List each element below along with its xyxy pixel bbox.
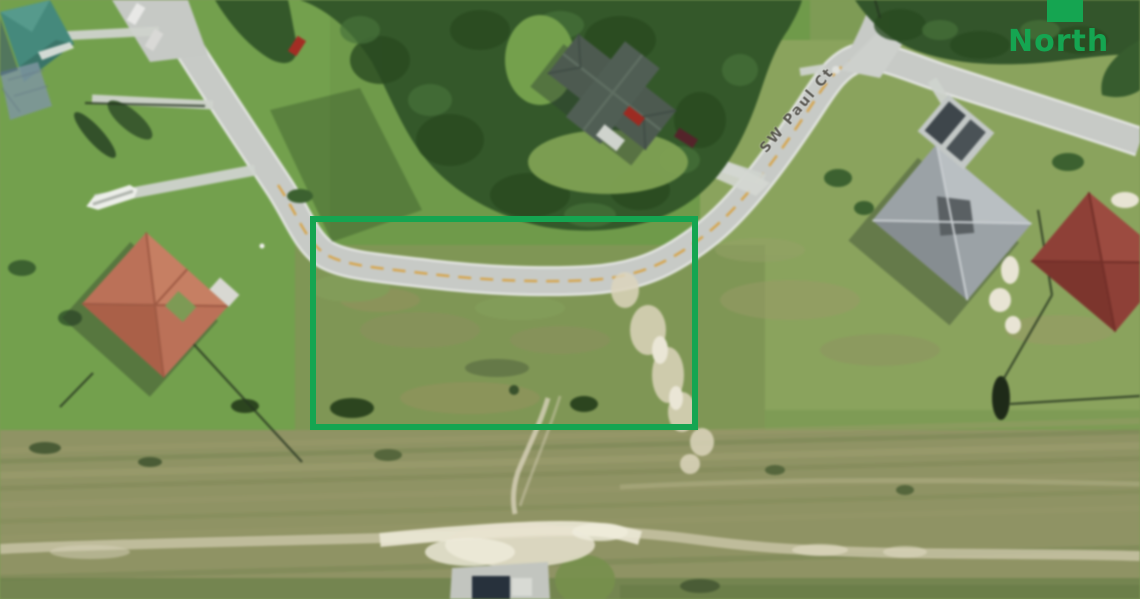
north-label: North xyxy=(1008,24,1109,59)
aerial-map-view: SW Paul Ct North xyxy=(0,0,1140,599)
annotation-layer xyxy=(0,0,1140,599)
lot-outline-annotation xyxy=(313,219,695,427)
north-arrow-icon xyxy=(1047,0,1083,22)
north-indicator: North xyxy=(990,0,1140,70)
